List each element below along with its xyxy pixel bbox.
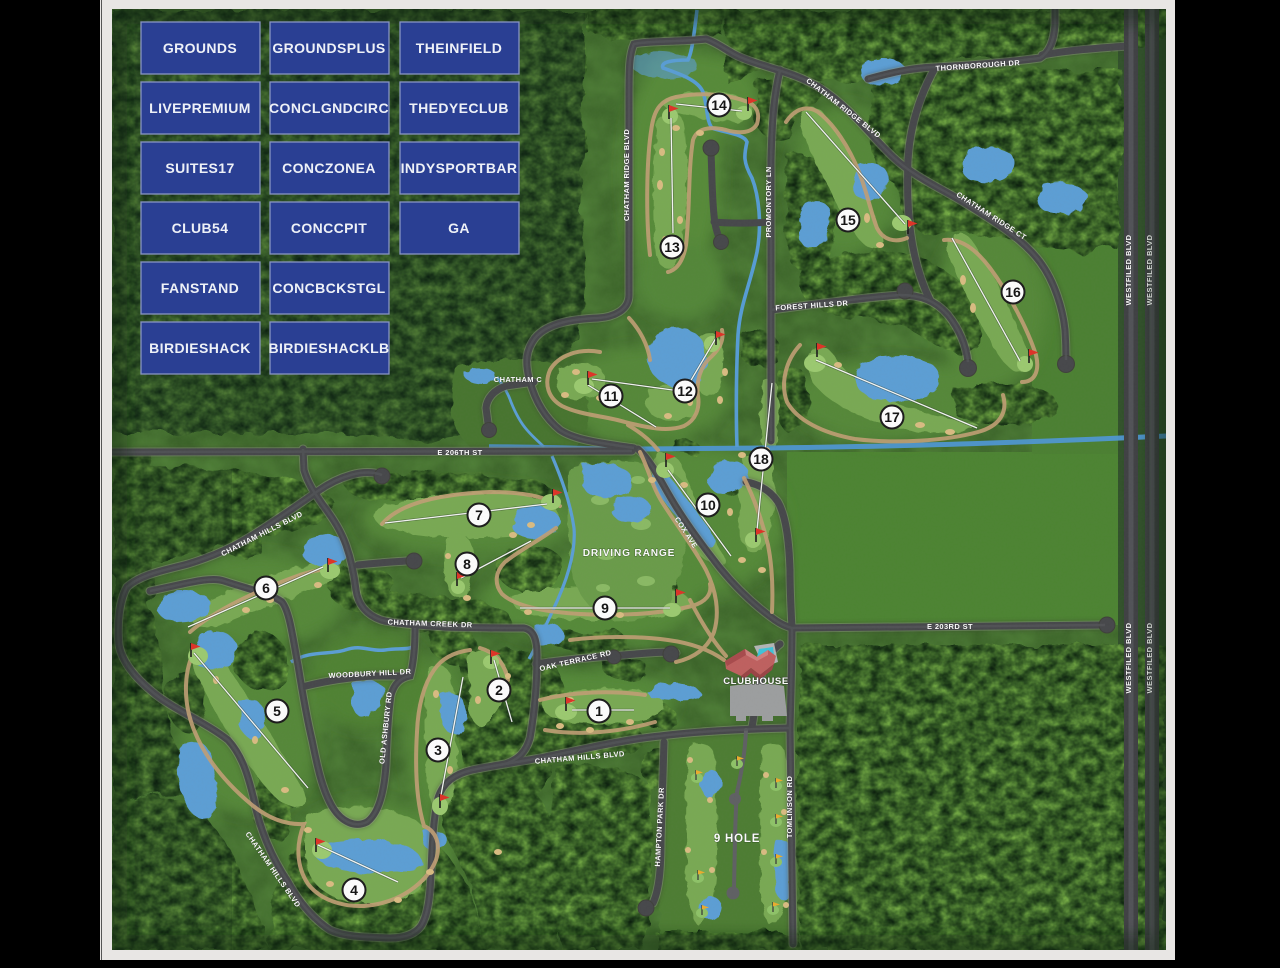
svg-text:CONCBCKSTGL: CONCBCKSTGL [272,280,385,296]
svg-text:BIRDIESHACKLB: BIRDIESHACKLB [268,340,389,356]
svg-text:BIRDIESHACK: BIRDIESHACK [149,340,251,356]
svg-text:CLUB54: CLUB54 [172,220,229,236]
svg-text:CONCZONEA: CONCZONEA [282,160,376,176]
svg-text:CONCCPIT: CONCCPIT [291,220,367,236]
svg-text:INDYSPORTBAR: INDYSPORTBAR [401,160,518,176]
svg-text:GA: GA [448,220,470,236]
svg-text:GROUNDS: GROUNDS [163,40,237,56]
svg-text:LIVEPREMIUM: LIVEPREMIUM [149,100,251,116]
svg-text:THEINFIELD: THEINFIELD [416,40,502,56]
svg-text:FANSTAND: FANSTAND [161,280,239,296]
svg-text:SUITES17: SUITES17 [165,160,234,176]
svg-text:GROUNDSPLUS: GROUNDSPLUS [272,40,385,56]
svg-text:THEDYECLUB: THEDYECLUB [409,100,509,116]
svg-text:CONCLGNDCIRC: CONCLGNDCIRC [269,100,389,116]
